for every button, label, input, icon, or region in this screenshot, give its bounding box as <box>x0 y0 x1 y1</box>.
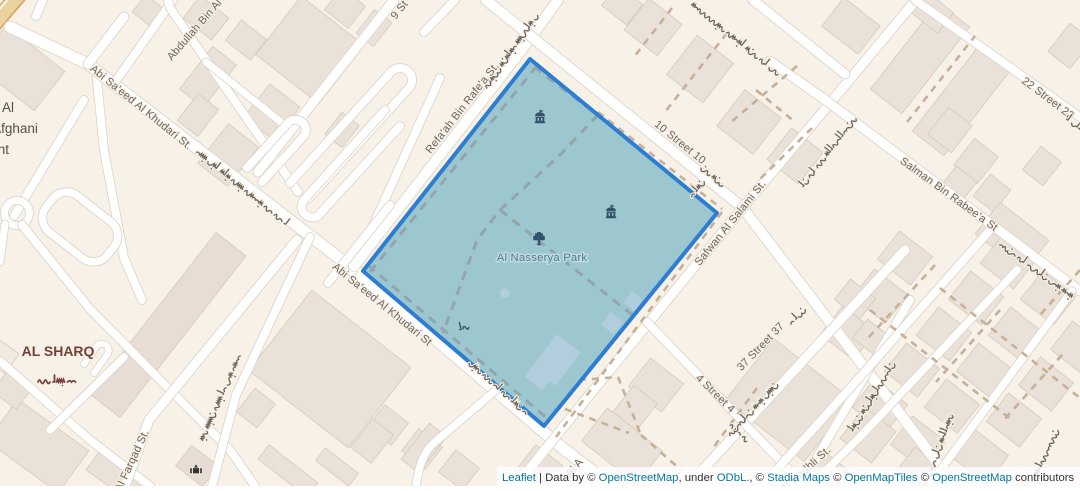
svg-text:Afghani: Afghani <box>0 121 38 136</box>
svg-text:AL SHARQ: AL SHARQ <box>22 343 95 359</box>
svg-text:Al: Al <box>2 100 14 115</box>
svg-text:ment: ment <box>0 142 9 157</box>
svg-text:Al Nasserya Park: Al Nasserya Park <box>497 252 588 264</box>
svg-text:Leaflet | Data by © OpenStreet: Leaflet | Data by © OpenStreetMap, under… <box>502 472 1074 484</box>
